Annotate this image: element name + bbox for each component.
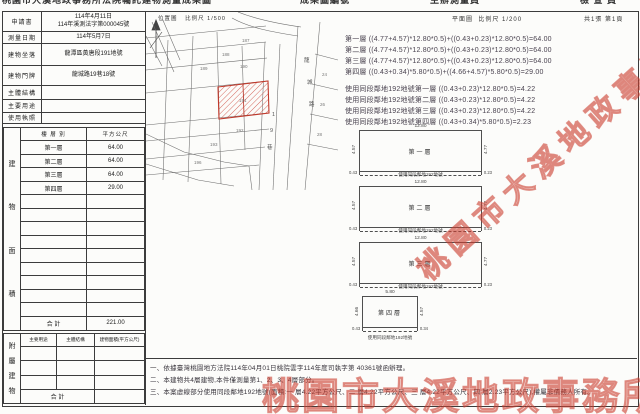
empty-cell [57,361,95,375]
plan-floor-label: 第一層 [360,131,481,171]
info-row-structure: 主體結構 [3,85,145,100]
floor-area-table: 建 物 面 積 樓 層 別 平方公尺 第一層 64.00 第二層 64.00 第… [3,127,145,331]
side-char: 面 [9,246,16,256]
parcel-number: 193 [210,142,218,147]
side-char: 建 [9,371,16,381]
strip-tick [362,327,363,331]
info-label: 主要用途 [3,99,42,112]
plan-dim-top: 12.80 [360,124,481,129]
sheet-title: 桃園市大溪地政事務所法院囑託建物測量成果圖 [2,0,212,6]
empty-cell [87,249,144,262]
floor-row-area: 64.00 [87,141,144,154]
strip-dim: 0.43 [352,326,360,331]
adjacent-land-label: 使用同段鄰地192地號 [360,172,481,178]
empty-cell [87,303,144,316]
empty-cell [87,263,144,276]
sheet-number-label: 成果圖編號 [300,0,350,6]
survey-result-sheet: 桃園市大溪地政事務所法院囑託建物測量成果圖 成果圖編號 主辦測量員 檢 查 員 … [0,0,640,414]
calc-line: 第三層 ((4.77+4.57)*12.80*0.5)+((0.43+0.23)… [345,56,552,66]
info-value: 114年4月11日 114年溪測法字第000045號 [42,11,145,31]
plan-header: 平面圖 比例尺 1/200 [452,14,522,23]
parcel-number: 189 [200,66,208,71]
annex-col-header: 主體結構 [57,334,95,347]
plan-dim-right: 4.77 [484,257,489,266]
empty-cell [21,290,87,303]
strip-dim: 0.23 [484,226,492,231]
empty-cell [21,361,57,375]
floor-row-label: 第四層 [21,182,87,195]
side-char: 積 [9,289,16,299]
empty-cell [87,222,144,235]
lane-name-char: 1 [272,112,275,118]
info-label: 測量日期 [3,31,42,43]
plan-dim-left: 4.66 [355,307,360,316]
floor-plan-1: 第一層 12.80 4.57 4.77 0.43 0.23 使用同段鄰地192地… [359,130,482,172]
calc-line: 使用同段鄰地192地號第二層 ((0.43+0.23)*12.80*0.5)=4… [345,95,535,105]
strip-dim: 0.23 [484,170,492,175]
info-row-door-plate: 建物門牌 龍城路19巷18號 [3,65,145,86]
plan-dim-right: 4.77 [484,201,489,210]
empty-cell [21,303,87,316]
empty-cell [21,249,87,262]
info-label: 建物坐落 [3,43,42,65]
application-date: 114年4月11日 [75,13,112,21]
annex-table: 附 屬 建 物 主要用途 主體結構 建物面積(平方公尺) 合 計 [3,333,145,404]
main-usage [42,99,145,112]
strip-tick [481,227,482,231]
door-plate: 龍城路19巷18號 [42,65,145,85]
floor-row-area: 64.00 [87,168,144,181]
calc-line: 使用同段鄰地192地號第一層 ((0.43+0.23)*12.80*0.5)=4… [345,84,535,94]
calc-line: 第一層 ((4.77+4.57)*12.80*0.5)+((0.43+0.23)… [345,34,552,44]
plan-title: 平面圖 [452,17,473,23]
empty-cell [21,347,57,361]
empty-cell [87,290,144,303]
empty-cell [21,195,87,208]
side-char: 屬 [9,356,16,366]
floor-table-side-label: 建 物 面 積 [4,128,21,330]
lane-name-char: 9 [270,128,273,134]
parcel-number: 26 [320,102,326,107]
empty-cell [21,222,87,235]
road-name-char: 龍 [304,56,310,64]
empty-cell [21,209,87,222]
road-name-char: 城 [307,79,313,86]
road-name-char: 路 [309,100,315,108]
empty-cell [95,390,144,403]
info-label: 建物門牌 [3,65,42,85]
sheet-count: 共1張 第1頁 [584,14,623,23]
surveyor-label: 主辦測量員 [430,0,480,6]
application-number: 114年溪測法字第000045號 [58,21,130,29]
road-labels: 龍 城 路 1 9 巷 [267,56,315,151]
plan-dim-top: 5.80 [363,290,417,295]
empty-cell [87,209,144,222]
north-arrow-icon [150,20,162,58]
lane-name-char: 巷 [267,143,273,151]
empty-cell [87,276,144,289]
floor-row-label: 第二層 [21,155,87,168]
strip-tick [417,327,418,331]
plan-floor-label: 第四層 [363,297,417,327]
info-label: 使用執照 [3,112,42,123]
building-site: 龍潭區黃唐段191地號 [42,43,145,65]
plan-dim-left: 4.57 [352,145,357,154]
side-char: 物 [9,202,16,212]
plan-dim-left: 4.57 [352,257,357,266]
floor-total-area: 221.00 [87,317,144,330]
empty-cell [21,236,87,249]
parcel-number: 24 [322,72,328,77]
parcel-number-subject: 191 [239,98,247,103]
plan-dim-top: 12.80 [360,180,481,185]
strip-dim: 0.43 [349,170,357,175]
plan-dim-top: 12.80 [360,236,481,241]
adjacent-land-strip [363,331,417,332]
empty-cell [21,376,57,390]
calc-line: 第二層 ((4.77+4.57)*12.80*0.5)+((0.43+0.23)… [345,45,552,55]
empty-cell [87,195,144,208]
strip-tick [481,171,482,175]
plan-floor-label: 第二層 [360,187,481,227]
strip-dim: 0.34 [420,326,428,331]
area-col-header: 平方公尺 [87,128,144,141]
floor-col-header: 樓 層 別 [21,128,87,141]
survey-date: 114年5月7日 [42,31,145,43]
info-row-usage: 主要用途 [3,99,145,113]
note-line-2: 二、本建物共4層建物,本件僅測量第1、2、3、4層部分。 [150,374,318,384]
note-line-1: 一、依據臺灣桃園地方法院114年04月01日桃院雲字114年度司執字第 4036… [150,362,409,372]
floor-row-area: 29.00 [87,182,144,195]
empty-cell [57,347,95,361]
info-label: 主體結構 [3,85,42,99]
main-structure [42,85,145,99]
annex-table-side-label: 附 屬 建 物 [4,334,21,403]
empty-cell [21,263,87,276]
side-char: 物 [9,386,16,396]
plan-scale: 比例尺 1/200 [478,17,522,23]
floor-row-area: 64.00 [87,155,144,168]
calc-line: 第四層 ((0.43+0.34)*5.80*0.5)+((4.66+4.57)*… [345,67,544,77]
floor-plan-2: 第二層 12.80 4.57 4.77 0.43 0.23 使用同段鄰地192地… [359,186,482,228]
parcel-number: 188 [222,52,230,57]
strip-dim: 0.23 [484,282,492,287]
adjacent-land-label: 使用同段鄰地192地號 [360,228,481,234]
info-label: 申請書 [3,11,42,31]
empty-cell [87,236,144,249]
side-char: 附 [9,341,16,351]
empty-cell [21,276,87,289]
parcel-number: 192 [236,128,244,133]
strip-dim: 0.43 [349,282,357,287]
strip-dim: 0.43 [349,226,357,231]
empty-cell [95,361,144,375]
annex-col-header: 建物面積(平方公尺) [95,334,144,347]
plan-dim-right: 4.77 [484,145,489,154]
parcel-number: 196 [194,160,202,165]
floor-row-label: 第一層 [21,141,87,154]
location-map: 187 188 189 190 191 192 193 196 24 26 28… [146,12,338,192]
parcel-number: 187 [242,38,250,43]
parcel-number: 190 [240,64,248,69]
info-row-license: 使用執照 [3,112,145,124]
notes-divider [145,358,637,359]
parcel-number: 28 [317,132,323,137]
plan-dim-right: 4.57 [420,307,425,316]
plan-floor-label: 第三層 [360,243,481,283]
empty-cell [95,376,144,390]
use-license [42,112,145,123]
annex-col-header: 主要用途 [21,334,57,347]
empty-cell [95,347,144,361]
floor-plan-3: 第三層 12.80 4.57 4.77 0.43 0.23 使用同段鄰地192地… [359,242,482,284]
floor-row-label: 第三層 [21,168,87,181]
strip-tick [481,283,482,287]
annex-total-label: 合 計 [21,390,95,403]
calc-line: 使用同段鄰地192地號第三層 ((0.43+0.23)*12.80*0.5)=4… [345,106,535,116]
side-char: 建 [9,159,16,169]
adjacent-land-label: 使用同段鄰地192地號 [363,335,417,341]
empty-cell [57,376,95,390]
floor-plan-4: 第四層 5.80 4.66 4.57 0.43 0.34 使用同段鄰地192地號 [362,296,418,328]
floor-total-label: 合 計 [21,317,87,330]
plan-dim-left: 4.57 [352,201,357,210]
info-row-application: 申請書 114年4月11日 114年溪測法字第000045號 [3,11,145,32]
note-line-3: 三、本案虛線部分使用同段鄰地192地號(面積:一 層4.22平方公尺、二 層4.… [150,386,594,396]
checker-label: 檢 查 員 [580,0,617,6]
info-row-building-site: 建物坐落 龍潭區黃唐段191地號 [3,43,145,66]
